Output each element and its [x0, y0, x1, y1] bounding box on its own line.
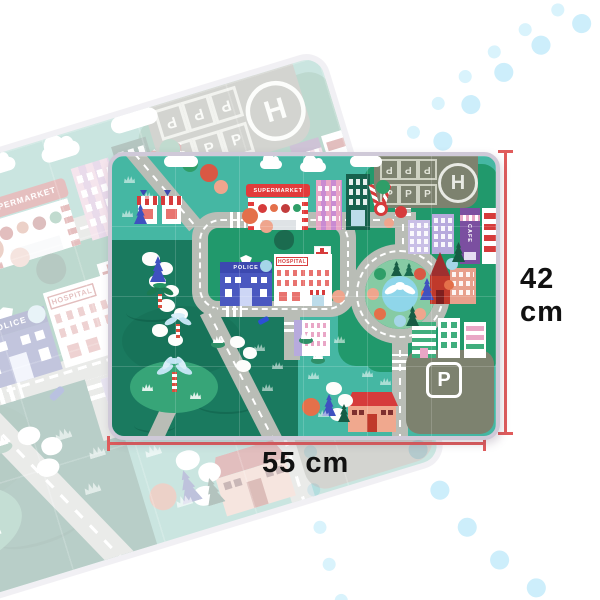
tree-icon [374, 268, 386, 280]
grass-tuft-icon [362, 370, 373, 377]
produce-icon [258, 204, 267, 213]
produce-icon [293, 204, 301, 212]
tree-icon [444, 280, 454, 290]
tree-icon [214, 180, 228, 194]
produce-icon [31, 215, 48, 232]
parking-bay: P [418, 184, 437, 205]
building-door [420, 348, 428, 358]
cafe-awning [460, 215, 480, 221]
palm-tree-icon [156, 360, 192, 394]
dimension-height-line [504, 150, 507, 435]
water-lily-icon [210, 336, 226, 348]
parking-bay-letter: P [424, 189, 431, 200]
produce-icon [270, 204, 278, 212]
dimension-height-label: 42 cm [520, 263, 600, 329]
tree-icon [332, 290, 345, 303]
parking-bay: P [399, 159, 418, 180]
parking-bay: P [418, 159, 437, 180]
parking-bay-letter: P [424, 164, 431, 175]
parking-bay-letter: P [230, 131, 244, 150]
dimension-width-label: 55 cm [262, 447, 349, 480]
apartment-building [316, 180, 342, 230]
tree-icon [395, 206, 407, 218]
church-door [436, 290, 444, 304]
tree-icon [376, 180, 390, 194]
pine-tree-icon [391, 261, 402, 276]
office-building [482, 208, 498, 264]
grass-tuft-icon [143, 443, 162, 458]
parking-bay: P [380, 159, 399, 180]
house-door [246, 478, 268, 508]
building-window [351, 210, 365, 226]
helipad-letter: H [260, 91, 291, 130]
cafe-sign: CAFE [466, 224, 472, 243]
parking-lot: P [406, 350, 494, 434]
palm-tree-icon [146, 284, 174, 310]
tree-icon [242, 208, 258, 224]
tree-icon [384, 218, 394, 228]
stone-icon [230, 336, 245, 348]
cloud-icon [300, 162, 326, 172]
parking-sign-letter: P [437, 369, 450, 392]
palm-tree-icon [164, 314, 192, 340]
tree-icon [200, 164, 218, 182]
fountain-icon [395, 282, 405, 290]
cloud-icon [164, 156, 198, 167]
supermarket-sign: SUPERMARKET [246, 184, 310, 197]
grass-tuft-icon [122, 210, 133, 217]
tree-icon [274, 230, 294, 250]
traffic-sign-icon [374, 202, 388, 216]
hospital-building: HOSPITAL [274, 254, 332, 306]
parking-bay: P [399, 184, 418, 205]
cloud-icon [260, 160, 282, 169]
hospital-door [312, 295, 324, 306]
play-mat: P P P P P P H P SUPERMARKET [108, 152, 500, 440]
police-door [9, 352, 34, 383]
apartment-building [408, 214, 454, 254]
tree-icon [414, 268, 426, 280]
police-facade [220, 273, 272, 306]
supermarket-building: SUPERMARKET [246, 184, 310, 230]
office-building [346, 174, 370, 230]
cloud-icon [0, 155, 17, 178]
parking-sign: P [426, 362, 462, 398]
parking-bay-letter: P [386, 164, 393, 175]
cloud-icon [350, 156, 382, 167]
stone-icon [236, 360, 251, 372]
pine-tree-icon [404, 263, 414, 276]
product-photo: P P P P P P H P SUPERMARKET [0, 0, 600, 600]
tree-icon [374, 308, 386, 320]
tree-icon [260, 220, 273, 233]
tree-icon [302, 398, 320, 416]
parking-bay-letter: P [219, 96, 233, 115]
pine-tree-icon [322, 394, 336, 416]
tree-icon [367, 288, 379, 300]
police-door [240, 288, 252, 306]
stone-icon [326, 382, 342, 395]
water-lily-icon [298, 332, 314, 344]
tree-icon [394, 315, 406, 327]
parking-bay-letter: P [192, 104, 206, 123]
parking-bay-letter: P [405, 164, 412, 175]
cloud-icon [40, 139, 82, 165]
tree-icon [146, 480, 180, 514]
water-lily-icon [310, 352, 326, 364]
dimension-width-line [107, 442, 486, 445]
helipad: H [438, 163, 478, 203]
helipad-letter: H [451, 172, 465, 195]
produce-icon [0, 225, 15, 242]
hospital-facade: HOSPITAL [274, 254, 332, 306]
house-building [346, 392, 398, 432]
apartment-building [412, 318, 460, 358]
awning-stripe [58, 198, 81, 247]
house-roof [346, 392, 398, 406]
stall-awning [161, 196, 182, 205]
produce-icon [15, 220, 30, 235]
parking-bay-letter: P [164, 112, 178, 131]
grass-tuft-icon [380, 378, 391, 385]
grass-tuft-icon [308, 372, 319, 379]
produce-icon [281, 204, 290, 213]
hospital-sign: HOSPITAL [276, 257, 308, 266]
parking-bay-letter: P [405, 189, 412, 200]
awning-stripe [302, 198, 308, 230]
tree-icon [260, 260, 272, 272]
grass-tuft-icon [124, 176, 135, 183]
produce-icon [48, 210, 63, 225]
house-door [367, 414, 377, 432]
stone-icon [338, 394, 353, 407]
apartment-building [464, 322, 486, 358]
